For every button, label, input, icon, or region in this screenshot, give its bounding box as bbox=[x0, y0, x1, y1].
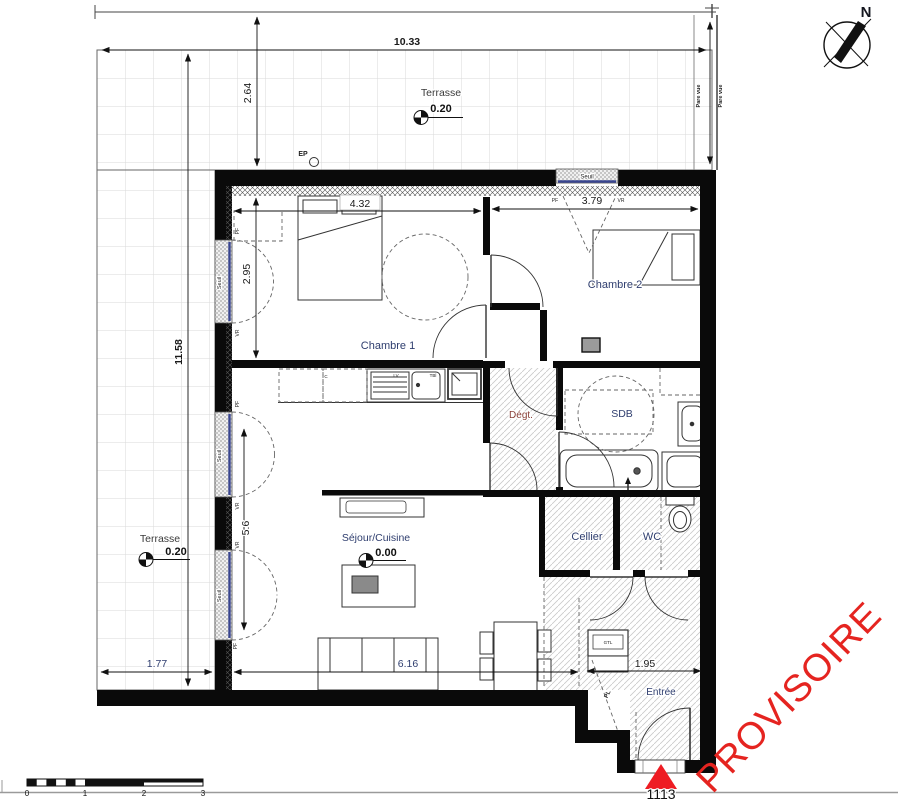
pare-vue-label: Pare vue bbox=[696, 85, 702, 108]
window-swing bbox=[232, 455, 275, 498]
north-label: N bbox=[861, 4, 872, 21]
scale-bar: 0 1 2 3 bbox=[25, 779, 206, 798]
vr-label: VR bbox=[618, 198, 625, 204]
kitchen-future-unit bbox=[279, 369, 323, 402]
seuil-label: Seuil bbox=[580, 175, 593, 181]
entree-floor bbox=[630, 690, 702, 760]
provisoire-stamp: PROVISOIRE bbox=[689, 594, 890, 800]
sofa bbox=[318, 638, 438, 690]
terrace-top bbox=[97, 50, 712, 170]
dim-label: 4.32 bbox=[350, 198, 371, 210]
level-value-terrasse-left: 0.20 bbox=[165, 546, 186, 558]
tv-console bbox=[340, 498, 424, 517]
dim-label: 6.16 bbox=[398, 658, 419, 670]
vr-label: VR bbox=[235, 541, 241, 548]
compass-needle bbox=[834, 21, 866, 63]
label-sejour: Séjour/Cuisine bbox=[342, 532, 410, 544]
turning-circle-chambre1 bbox=[382, 234, 468, 320]
duct-box bbox=[582, 338, 600, 352]
label-sdb: SDB bbox=[611, 408, 633, 420]
gtl-cabinet bbox=[588, 630, 628, 672]
window-swing bbox=[232, 412, 275, 455]
level-value-terrasse-top: 0.20 bbox=[430, 103, 451, 115]
coffee-table bbox=[342, 565, 415, 607]
floor-plan-drawing: Chambre 1 Chambre 2 SDB Dégt. Cellier WC… bbox=[0, 0, 898, 800]
dim-label: 2.95 bbox=[241, 264, 253, 285]
c-label: C bbox=[324, 374, 328, 379]
label-degt: Dégt. bbox=[509, 410, 533, 421]
dining-set bbox=[480, 622, 551, 691]
tbl-label: TBl bbox=[430, 373, 437, 378]
level-value-sejour: 0.00 bbox=[375, 547, 396, 559]
wall-chambre1-bottom bbox=[232, 360, 483, 368]
lot-number: 1113 bbox=[646, 786, 675, 800]
label-wc: WC bbox=[643, 531, 661, 543]
seuil-label: Seuil bbox=[217, 450, 223, 462]
label-entree: Entrée bbox=[646, 687, 676, 698]
seuil-label: Seuil bbox=[217, 277, 223, 289]
scale-tick: 3 bbox=[201, 789, 206, 798]
degt-floor bbox=[490, 368, 556, 490]
pf-label: PF bbox=[235, 228, 241, 234]
dim-label: 2.64 bbox=[242, 83, 254, 104]
door-chambre1 bbox=[433, 305, 486, 358]
dim-label: 3.79 bbox=[582, 195, 603, 207]
pf-label: PF bbox=[233, 643, 239, 649]
kitchen-counter bbox=[278, 369, 487, 403]
scale-tick: 2 bbox=[142, 789, 147, 798]
pf-label: PF bbox=[552, 198, 558, 204]
wall-degt-left bbox=[483, 361, 490, 443]
door-chambre2 bbox=[491, 255, 543, 307]
kitchen-future-unit bbox=[323, 369, 367, 402]
bed-chambre1 bbox=[298, 196, 382, 300]
kitchen-bar-wall bbox=[322, 490, 483, 496]
label-terrasse-top: Terrasse bbox=[421, 87, 461, 99]
wall-chambre2-bottom bbox=[553, 361, 716, 368]
wall-cellier-left bbox=[539, 497, 545, 577]
placard-chambre1 bbox=[234, 211, 282, 241]
label-chambre1: Chambre 1 bbox=[361, 340, 415, 352]
dim-label: 10.33 bbox=[394, 36, 420, 48]
dim-label: 1.77 bbox=[147, 658, 168, 670]
wall-cellier-wc bbox=[613, 497, 620, 570]
pf-label: PF bbox=[235, 401, 241, 407]
window-swing bbox=[232, 550, 277, 595]
bed-chambre2 bbox=[593, 230, 700, 285]
lv-label: LV bbox=[393, 373, 398, 378]
sdb-future-unit bbox=[660, 365, 707, 395]
wall-chambres bbox=[483, 197, 490, 255]
dim-label: 5.6 bbox=[240, 521, 252, 536]
label-terrasse-left: Terrasse bbox=[140, 533, 180, 545]
dim-label: 11.58 bbox=[173, 339, 185, 365]
pare-vue-label: Pare vue bbox=[718, 85, 724, 108]
label-chambre2: Chambre 2 bbox=[588, 279, 642, 291]
stamp-group: PROVISOIRE bbox=[689, 594, 890, 800]
insulation-band bbox=[232, 186, 712, 196]
window-swing bbox=[232, 282, 274, 324]
seuil-label: Seuil bbox=[217, 590, 223, 602]
dim-label: 1.95 bbox=[635, 658, 656, 670]
vr-label: VR bbox=[235, 502, 241, 509]
pl-label: PL bbox=[604, 690, 613, 700]
ep-label: EP bbox=[298, 151, 308, 158]
vr-label: VR bbox=[235, 329, 241, 336]
bathtub bbox=[560, 450, 658, 492]
wall-sdb-bottom bbox=[483, 490, 716, 497]
gtl-label: GTL bbox=[604, 640, 613, 645]
window-swing bbox=[232, 595, 277, 640]
floor-plan-page: Chambre 1 Chambre 2 SDB Dégt. Cellier WC… bbox=[0, 0, 898, 800]
label-cellier: Cellier bbox=[571, 531, 603, 543]
north-arrow: N bbox=[824, 4, 871, 68]
wall-nook-v bbox=[540, 310, 547, 361]
wall-nook bbox=[490, 303, 540, 310]
scale-tick: 1 bbox=[83, 789, 88, 798]
scale-tick: 0 bbox=[25, 789, 30, 798]
terrace-left bbox=[97, 170, 215, 690]
